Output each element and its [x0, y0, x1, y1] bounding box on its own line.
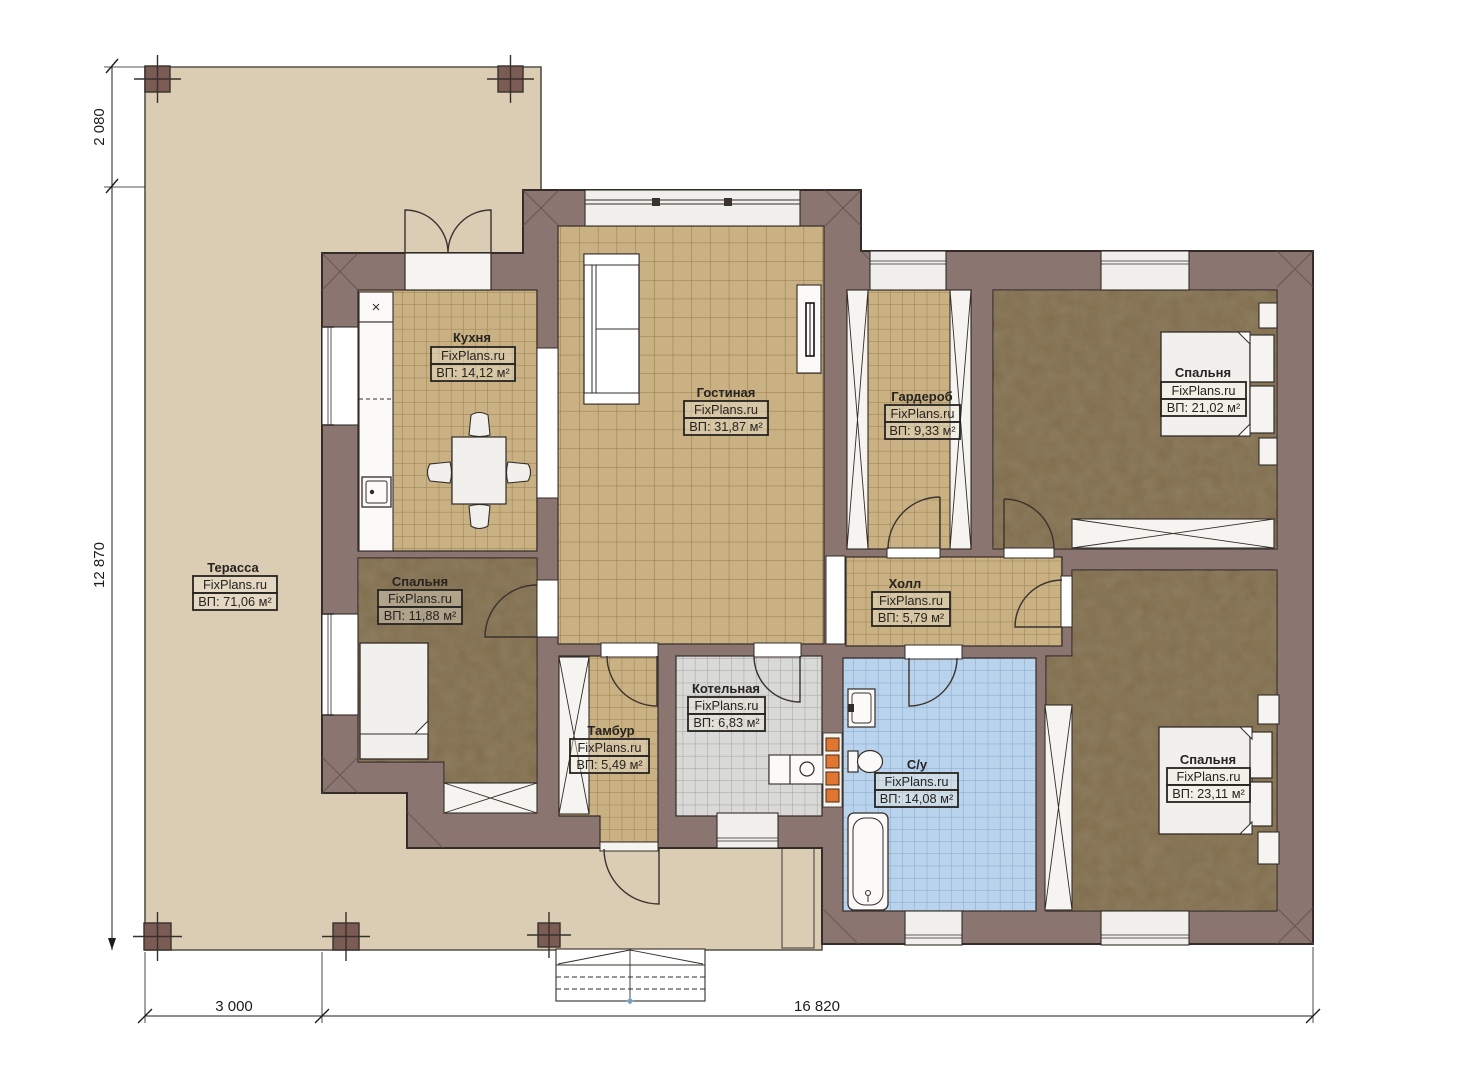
svg-text:FixPlans.ru: FixPlans.ru — [441, 348, 505, 363]
svg-text:Кухня: Кухня — [453, 330, 491, 345]
svg-text:ВП: 31,87 м²: ВП: 31,87 м² — [689, 419, 763, 434]
svg-text:ВП: 6,83 м²: ВП: 6,83 м² — [693, 715, 760, 730]
svg-text:ВП: 11,88 м²: ВП: 11,88 м² — [384, 608, 457, 623]
svg-text:FixPlans.ru: FixPlans.ru — [1176, 769, 1240, 784]
svg-text:FixPlans.ru: FixPlans.ru — [1171, 383, 1235, 398]
svg-text:ВП: 23,11 м²: ВП: 23,11 м² — [1172, 786, 1245, 801]
svg-text:ВП: 9,33 м²: ВП: 9,33 м² — [889, 423, 956, 438]
svg-text:Спальня: Спальня — [1175, 365, 1231, 380]
svg-text:Гардероб: Гардероб — [891, 389, 952, 404]
svg-text:2 080: 2 080 — [91, 108, 108, 146]
svg-text:Спальня: Спальня — [1180, 752, 1236, 767]
svg-text:16 820: 16 820 — [794, 998, 840, 1015]
svg-text:Холл: Холл — [889, 576, 922, 591]
svg-text:FixPlans.ru: FixPlans.ru — [694, 402, 758, 417]
svg-text:FixPlans.ru: FixPlans.ru — [388, 591, 452, 606]
svg-text:ВП: 21,02 м²: ВП: 21,02 м² — [1167, 400, 1241, 415]
svg-text:FixPlans.ru: FixPlans.ru — [879, 593, 943, 608]
svg-text:ВП: 5,79 м²: ВП: 5,79 м² — [878, 610, 945, 625]
svg-text:ВП: 71,06 м²: ВП: 71,06 м² — [198, 594, 272, 609]
svg-text:Котельная: Котельная — [692, 681, 760, 696]
svg-text:3 000: 3 000 — [215, 998, 253, 1015]
svg-text:Спальня: Спальня — [392, 574, 448, 589]
svg-text:ВП: 5,49 м²: ВП: 5,49 м² — [576, 757, 643, 772]
svg-text:FixPlans.ru: FixPlans.ru — [203, 577, 267, 592]
svg-text:Терасса: Терасса — [207, 560, 259, 575]
svg-text:ВП: 14,08 м²: ВП: 14,08 м² — [880, 791, 954, 806]
svg-text:ВП: 14,12 м²: ВП: 14,12 м² — [436, 365, 510, 380]
svg-text:FixPlans.ru: FixPlans.ru — [694, 698, 758, 713]
svg-text:FixPlans.ru: FixPlans.ru — [577, 740, 641, 755]
svg-text:Гостиная: Гостиная — [697, 385, 756, 400]
svg-text:FixPlans.ru: FixPlans.ru — [890, 406, 954, 421]
svg-text:FixPlans.ru: FixPlans.ru — [884, 774, 948, 789]
svg-text:12 870: 12 870 — [91, 542, 108, 588]
svg-text:С/у: С/у — [907, 757, 928, 772]
svg-text:Тамбур: Тамбур — [587, 723, 634, 738]
